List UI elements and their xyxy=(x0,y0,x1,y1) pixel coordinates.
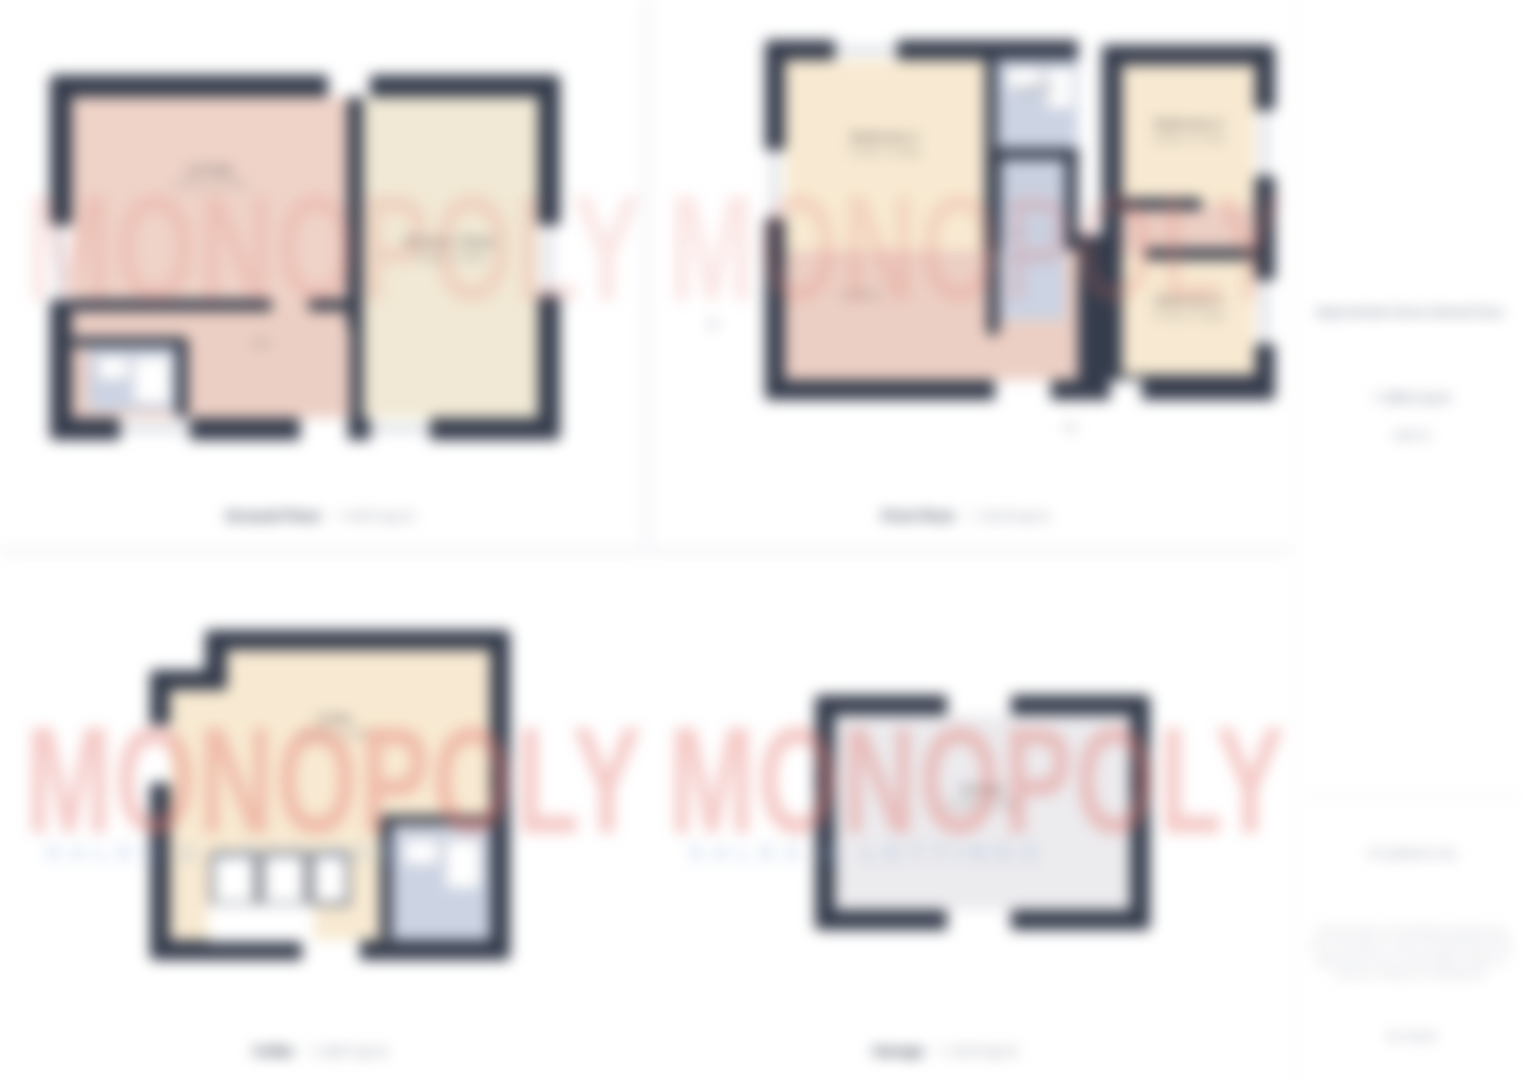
caption-first-floor: First Floor = 41.8 sq m xyxy=(840,508,1090,525)
sidebar-area-value: = 120.2 sq m xyxy=(1332,390,1492,405)
caption-title: First Floor xyxy=(881,508,955,525)
watermark-top-left: MONOPOLY xyxy=(25,163,644,337)
window-gap xyxy=(328,75,370,97)
door-gap xyxy=(1110,380,1142,400)
first-stair-wall-top xyxy=(987,148,1079,160)
sidebar-area-title: Approximate Gross Internal Area xyxy=(1309,305,1509,319)
caption-area: = 14.9 sq m xyxy=(939,1043,1018,1060)
sidebar-reference-text: Ref: 000000 xyxy=(1387,1032,1436,1042)
window-line xyxy=(120,427,190,431)
watermark-tagline-text: SALES & LETTINGS xyxy=(45,840,402,867)
blurred-content: Lounge 4.57m x 3.73m Kitchen / Diner 3.6… xyxy=(0,0,1527,1080)
watermark-tagline-left: SALES & LETTINGS xyxy=(45,840,402,868)
watermark-text: MONOPOLY xyxy=(668,164,1287,334)
room-label-bedroom2: Bedroom 2 3.05m x 2.74m xyxy=(1125,115,1253,147)
caption-area: = 41.8 sq m xyxy=(970,508,1049,525)
caption-area: = 18.6 sq m xyxy=(309,1043,388,1060)
caption-title: Cellar xyxy=(253,1043,295,1060)
room-name: Bedroom 1 xyxy=(820,128,950,146)
room-dims: 3.05m x 2.74m xyxy=(1125,133,1253,148)
sidebar-area-note-text: (approx) xyxy=(1393,430,1430,441)
room-label-hall: Hall xyxy=(225,337,295,352)
door-gap xyxy=(300,418,348,440)
floorplan-sheet: Lounge 4.57m x 3.73m Kitchen / Diner 3.6… xyxy=(0,0,1527,1080)
watermark-top-right: MONOPOLY xyxy=(668,163,1287,337)
toilet-fixture xyxy=(132,355,172,405)
caption-ground-floor: Ground Floor = 44.9 sq m xyxy=(195,508,445,525)
sink-fixture xyxy=(96,355,130,381)
ground-wc-wall xyxy=(176,337,188,418)
caption-area: = 44.9 sq m xyxy=(336,508,415,525)
sidebar-disclaimer-text: This floor plan is for illustrative purp… xyxy=(1310,926,1512,980)
door-gap xyxy=(947,910,1011,930)
watermark-text: MONOPOLY xyxy=(25,164,644,334)
sidebar-divider xyxy=(1307,795,1517,797)
sidebar: Approximate Gross Internal Area = 120.2 … xyxy=(1295,0,1527,1080)
sidebar-area-title-text: Approximate Gross Internal Area xyxy=(1315,305,1503,319)
sidebar-reference: Ref: 000000 xyxy=(1372,1032,1452,1042)
door-gap xyxy=(302,940,360,960)
room-name: Bathroom xyxy=(1000,82,1076,94)
caption-cellar: Cellar = 18.6 sq m xyxy=(195,1043,445,1060)
window-line xyxy=(370,427,430,431)
caption-garage: Garage = 14.9 sq m xyxy=(820,1043,1070,1060)
room-name: Hall xyxy=(225,337,295,352)
room-label-bedroom1: Bedroom 1 3.73m x 3.35m xyxy=(820,128,950,160)
room-label-bathroom: Bathroom xyxy=(1000,82,1076,94)
stairs-note-text: up xyxy=(1064,421,1076,433)
stairs-note: up xyxy=(1040,420,1100,434)
sidebar-disclaimer: This floor plan is for illustrative purp… xyxy=(1309,925,1514,982)
sidebar-area-value-text: = 120.2 sq m xyxy=(1373,390,1451,405)
window-line xyxy=(835,48,897,52)
room-dims: 3.73m x 3.35m xyxy=(820,146,950,161)
ground-wc-wall-top xyxy=(72,337,182,347)
counter-fixture xyxy=(208,904,314,942)
watermark-tagline-text: SALES & LETTINGS xyxy=(688,840,1045,867)
caption-title: Garage xyxy=(873,1043,925,1060)
sidebar-guidance-text: For guidance only xyxy=(1368,848,1455,860)
watermark-tagline-right: SALES & LETTINGS xyxy=(688,840,1045,868)
door-gap xyxy=(995,380,1051,400)
grid-divider-horizontal xyxy=(0,546,1290,556)
caption-title: Ground Floor xyxy=(226,508,322,525)
room-name: Bedroom 2 xyxy=(1125,115,1253,133)
sidebar-guidance: For guidance only xyxy=(1347,848,1477,860)
sidebar-area-note: (approx) xyxy=(1382,430,1442,441)
